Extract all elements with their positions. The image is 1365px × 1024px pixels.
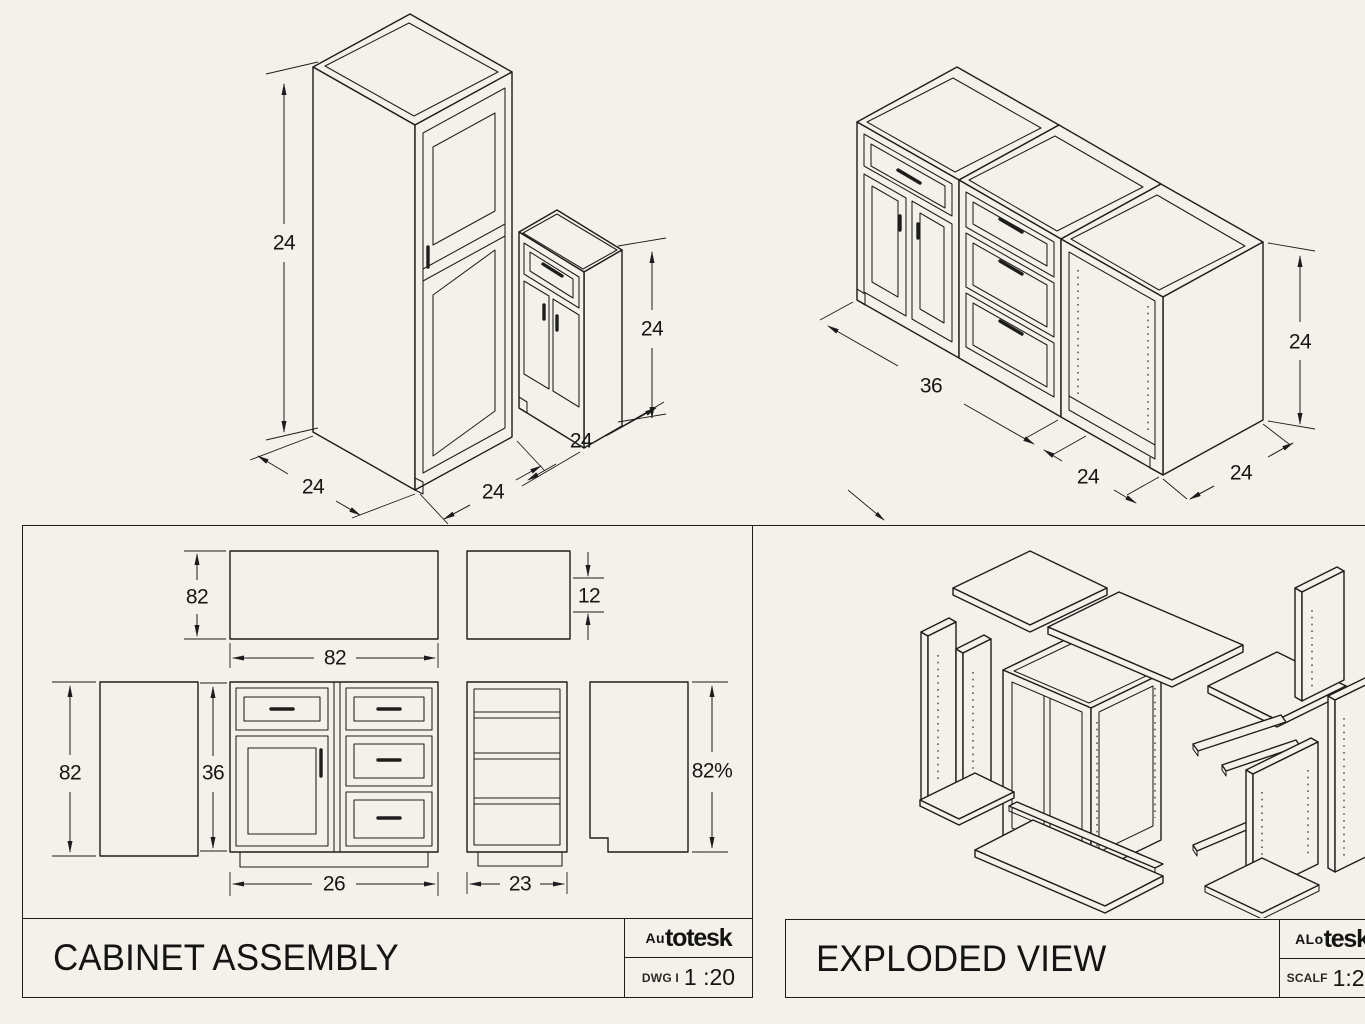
dimension-label: 24 <box>1077 466 1100 489</box>
dim-carcass-width: 23 <box>467 872 567 896</box>
dim-top-thickness: 12 <box>573 552 604 640</box>
brand-prefix-right: ALo <box>1295 931 1323 947</box>
dim-cabinet-height-front: 36 <box>200 683 227 851</box>
dim-cabinet-height: 24 <box>1268 243 1315 429</box>
notched-side-panel-view <box>590 682 688 852</box>
brand-suffix-right: tesk <box>1324 925 1365 954</box>
exploded-side-panel-far-right <box>1328 678 1365 872</box>
dim-side-panel-height: 82% <box>692 682 733 852</box>
dim-tall-height: 24 <box>266 62 318 440</box>
dimension-label: 36 <box>920 375 942 398</box>
exploded-view-drawing <box>785 526 1365 918</box>
brand-logo: Autotesk <box>625 919 752 958</box>
tall-cabinet-drawing <box>313 14 512 494</box>
dim-base-height: 24 <box>618 238 666 422</box>
cabinet-elevation-view <box>230 682 438 867</box>
dimension-label: 36 <box>202 762 224 785</box>
sheet-title: CABINET ASSEMBLY <box>23 919 588 997</box>
brand-block-left: Autotesk DWG I 1 :20 <box>624 919 752 997</box>
title-block-right: EXPLODED VIEW ALotesk SCALF 1:20 <box>785 919 1365 998</box>
dimension-label: 26 <box>323 873 345 896</box>
brand-block-right: ALotesk SCALF 1:20 <box>1279 920 1365 997</box>
scale-value-right: 1:20 <box>1333 965 1365 992</box>
dimension-label: 82 <box>186 586 208 609</box>
dimension-label: 82 <box>324 647 346 670</box>
dimension-label: 82% <box>692 760 733 783</box>
dim-panel-height: 82 <box>184 551 226 639</box>
scale-label: DWG I <box>642 971 679 985</box>
exploded-upper-right-panel <box>1295 567 1344 701</box>
dimension-label: 24 <box>302 476 325 499</box>
dim-side-height: 82 <box>52 682 96 856</box>
dimension-label: 24 <box>273 232 296 255</box>
base-cabinet-drawing <box>519 210 622 448</box>
carcass-view <box>467 682 567 866</box>
dimension-label: 82 <box>59 762 81 785</box>
dimension-label: 23 <box>509 873 531 896</box>
top-panel-view <box>467 551 570 639</box>
drawing-sheet: 24 24 24 24 24 <box>0 0 1365 1024</box>
dimension-label: 24 <box>1289 331 1312 354</box>
sheet-title-right: EXPLODED VIEW <box>786 920 1249 997</box>
orthographic-views: 82 82 12 82 <box>22 525 753 919</box>
dimension-label: 24 <box>570 430 593 453</box>
scale-label-right: SCALF <box>1287 971 1328 985</box>
dimension-label: 24 <box>1230 462 1253 485</box>
isometric-drawings: 24 24 24 24 24 <box>0 0 1365 525</box>
scale-value: 1 :20 <box>684 964 735 991</box>
back-panel-view <box>230 551 438 639</box>
brand-prefix: Au <box>646 930 665 946</box>
title-block-left: CABINET ASSEMBLY Autotesk DWG I 1 :20 <box>23 918 752 997</box>
scale-row: DWG I 1 :20 <box>625 958 752 997</box>
dim-cabinet-width-front: 26 <box>230 872 438 896</box>
scale-row-right: SCALF 1:20 <box>1280 959 1365 997</box>
dimension-label: 12 <box>578 585 600 608</box>
brand-suffix: totesk <box>665 924 731 953</box>
dimension-label: 24 <box>482 481 505 504</box>
brand-logo-right: ALotesk <box>1280 920 1365 959</box>
side-panel-view <box>100 682 198 856</box>
cabinet-run-drawing <box>857 67 1263 475</box>
dimension-label: 24 <box>641 318 664 341</box>
dim-panel-width: 82 <box>230 643 438 670</box>
